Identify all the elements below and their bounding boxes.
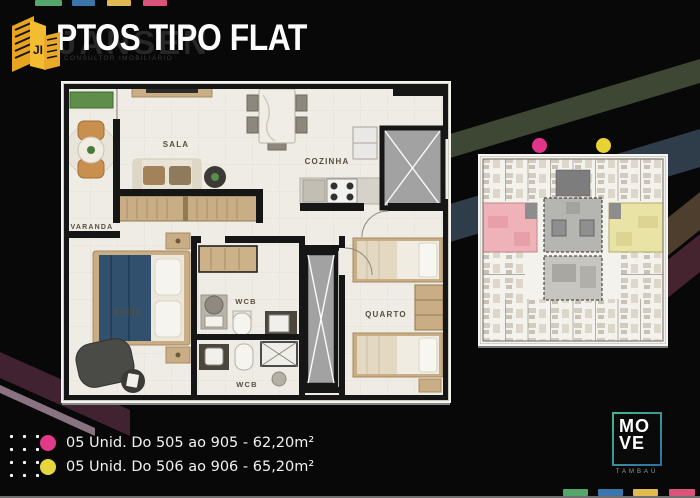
room-label-wcb-social: WCB	[236, 380, 258, 389]
legend-yellow-dot	[40, 459, 56, 475]
legend-item-yellow: 05 Unid. Do 506 ao 906 - 65,20m²	[40, 459, 314, 475]
building-floor-plate	[478, 154, 668, 346]
page-title: PTOS TIPO FLAT	[56, 17, 307, 59]
room-quarto: QUARTO	[353, 238, 443, 392]
apartment-floor-plan: VARANDA SALA	[61, 81, 451, 403]
utility-shaft-top	[382, 128, 443, 208]
bottom-dash-pink	[669, 489, 695, 496]
decor-dots-grid	[3, 428, 44, 480]
room-label-varanda: VARANDA	[71, 224, 114, 231]
corridor-wardrobe	[119, 196, 257, 221]
legend-pink-dot	[40, 435, 56, 451]
room-label-suite: SUÍTE	[113, 308, 143, 317]
move-logo-text: MO VE	[614, 414, 660, 464]
bottom-dash-green	[563, 489, 588, 496]
legend-yellow-label: 05 Unid. Do 506 ao 906 - 65,20m²	[66, 459, 314, 475]
floor-plan-drawing: VARANDA SALA	[63, 83, 449, 401]
legend-item-pink: 05 Unid. Do 505 ao 905 - 62,20m²	[40, 435, 314, 451]
room-label-sala: SALA	[163, 140, 190, 149]
move-logo: MO VE	[612, 412, 662, 466]
room-label-wcb-suite: WCB	[235, 297, 257, 306]
plate-marker-pink-dot	[532, 138, 547, 153]
jansen-buildings-icon: JI	[8, 10, 66, 76]
plate-marker-yellow-dot	[596, 138, 611, 153]
top-dash-green	[35, 0, 62, 6]
floor-plate-drawing	[480, 156, 666, 344]
plate-unit-pink	[483, 203, 537, 252]
plate-unit-yellow	[609, 203, 663, 252]
legend-pink-label: 05 Unid. Do 505 ao 905 - 62,20m²	[66, 435, 314, 451]
svg-text:JI: JI	[33, 43, 43, 57]
room-label-cozinha: COZINHA	[305, 157, 350, 166]
utility-shaft-bottom	[306, 253, 336, 385]
move-logo-subtitle: TAMBAÚ	[612, 469, 662, 475]
room-label-quarto: QUARTO	[365, 310, 407, 319]
top-dash-pink	[143, 0, 167, 6]
top-dash-blue	[72, 0, 95, 6]
move-line2: VE	[619, 435, 660, 452]
bottom-dash-blue	[598, 489, 623, 496]
bottom-dash-yellow	[633, 489, 658, 496]
top-dash-yellow	[107, 0, 131, 6]
flyer-slide: JANSEN CONSULTOR IMOBILIÁRIO PTOS TIPO F…	[0, 0, 700, 498]
